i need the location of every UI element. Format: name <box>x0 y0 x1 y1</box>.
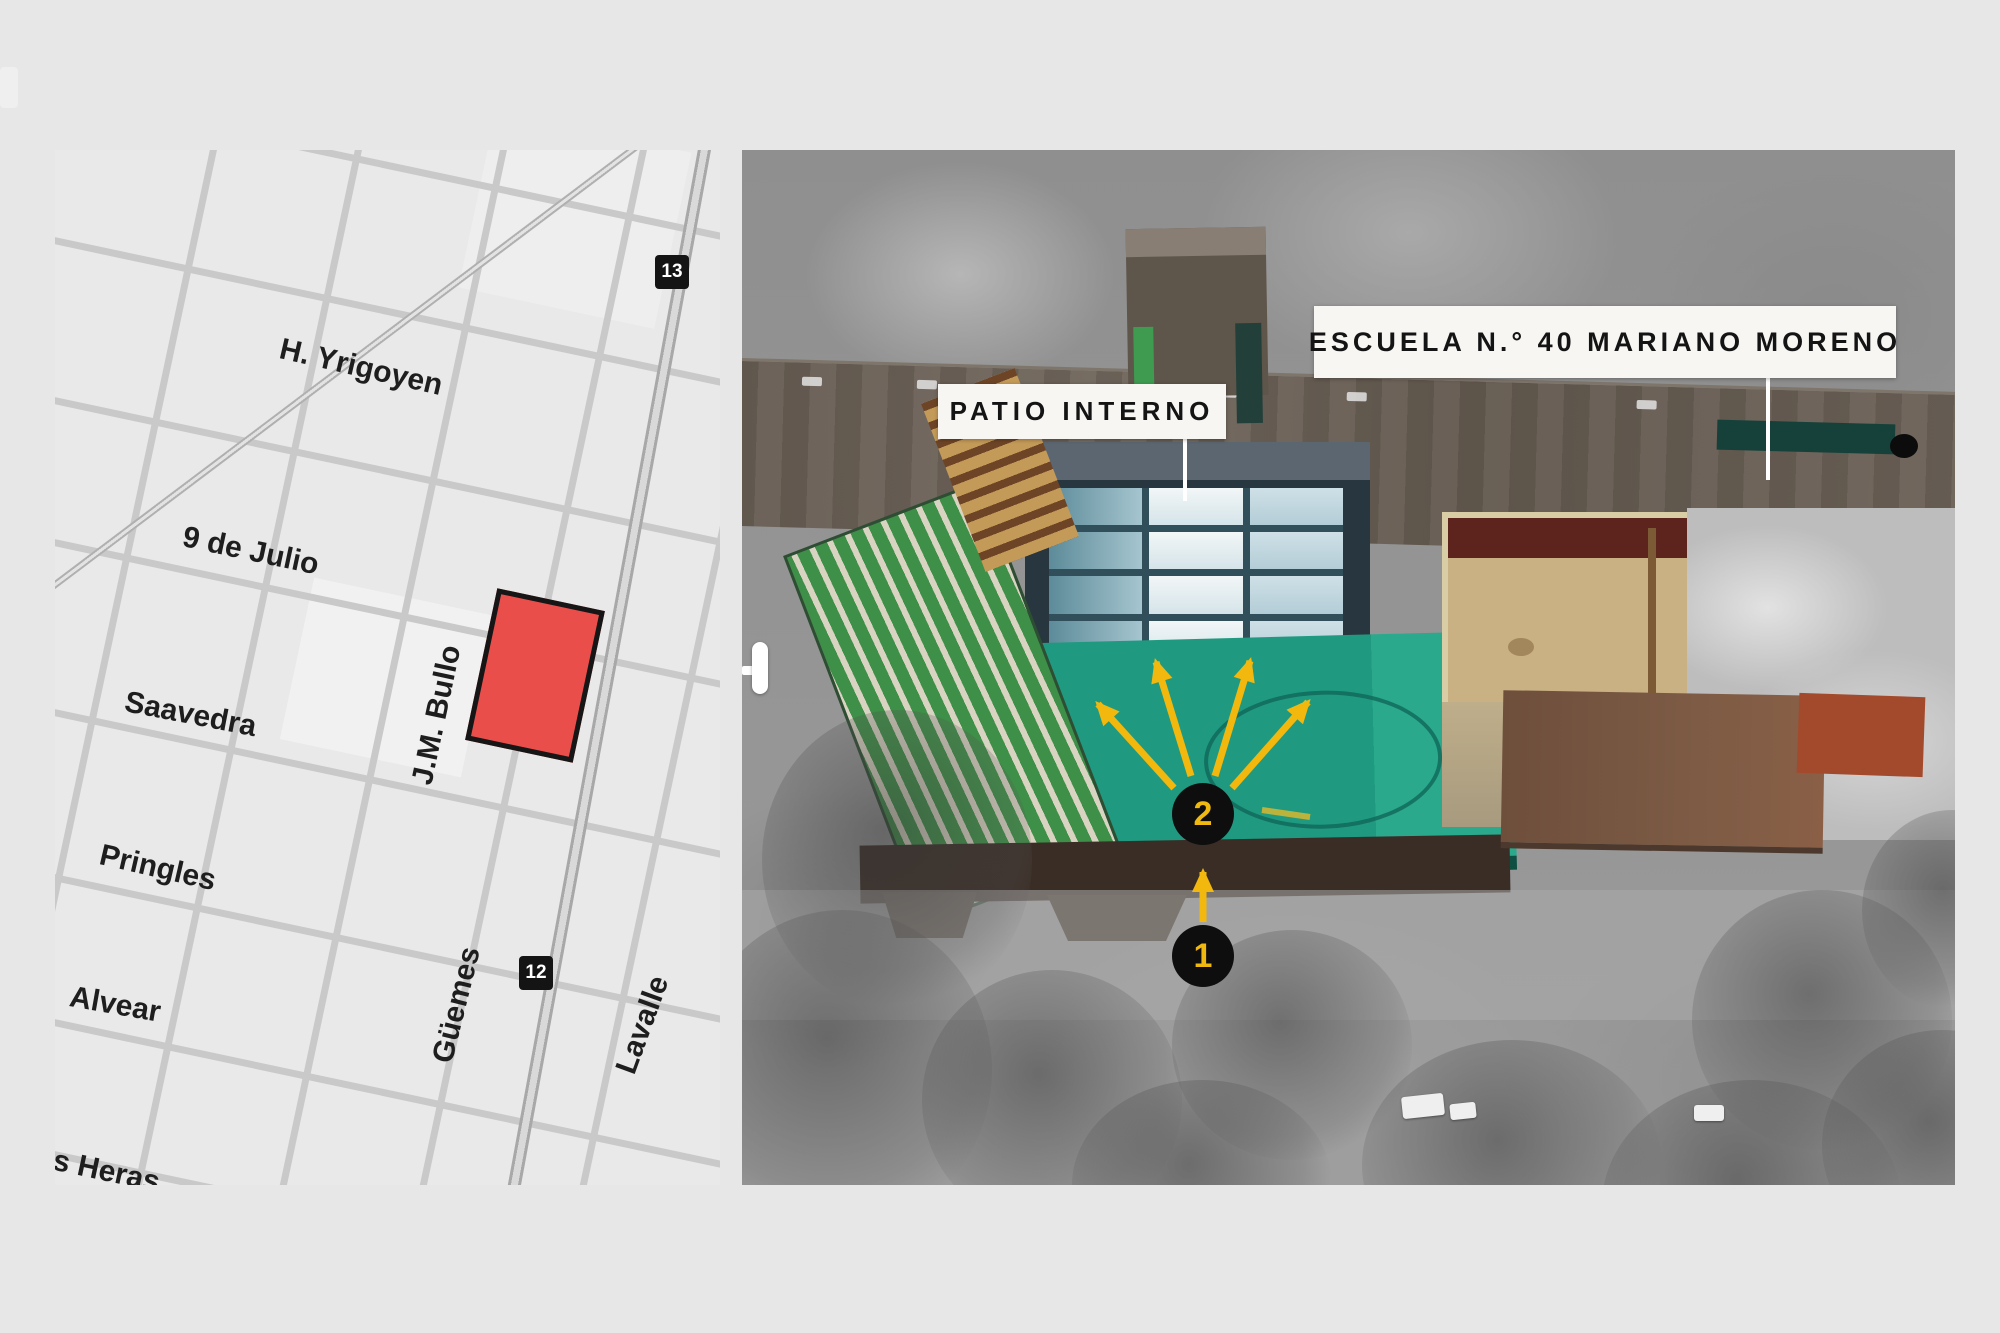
marker-2: 2 <box>1172 783 1234 845</box>
patio-wall <box>1025 442 1370 480</box>
wing-roof-cap <box>1126 227 1266 257</box>
route-badge-number: 13 <box>661 261 682 283</box>
marker-number: 1 <box>1194 937 1213 976</box>
wing-dark-slab <box>1235 323 1263 423</box>
hedge-strip <box>1717 420 1896 455</box>
building-wing <box>1126 227 1269 397</box>
court-marking <box>1202 688 1444 832</box>
white-car <box>1401 1093 1445 1119</box>
corner-chip <box>0 67 18 108</box>
white-car <box>1694 1105 1724 1121</box>
courtyard-pole <box>1648 528 1656 696</box>
white-car <box>1449 1102 1477 1121</box>
courtyard-wall <box>1448 518 1693 558</box>
street-label-yrigoyen: H. Yrigoyen <box>276 332 446 403</box>
hedge-shadow <box>1890 434 1918 458</box>
escuela-leader-line <box>1766 378 1770 480</box>
street-line-yrigoyen <box>55 369 720 573</box>
roof-skylight <box>917 380 937 390</box>
street-map-panel: 13 12 H. Yrigoyen 9 de Julio Saavedra Pr… <box>55 150 720 1185</box>
marker-1: 1 <box>1172 925 1234 987</box>
marker-number: 2 <box>1194 795 1213 834</box>
callout-text: ESCUELA N.° 40 MARIANO MORENO <box>1309 327 1901 358</box>
aerial-photo-panel: PATIO INTERNO ESCUELA N.° 40 MARIANO MOR… <box>742 150 1955 1185</box>
dirt-courtyard <box>1442 512 1699 714</box>
red-roof-section <box>1797 693 1926 777</box>
route-badge-13: 13 <box>655 255 689 289</box>
courtyard-shadow <box>1508 638 1534 656</box>
callout-text: PATIO INTERNO <box>950 396 1215 427</box>
callout-patio-interno: PATIO INTERNO <box>938 384 1226 439</box>
callout-escuela: ESCUELA N.° 40 MARIANO MORENO <box>1314 306 1896 378</box>
patio-leader-line <box>1183 439 1187 501</box>
roof-skylight <box>802 377 822 387</box>
brown-roof <box>1501 690 1826 854</box>
infographic-canvas: 13 12 H. Yrigoyen 9 de Julio Saavedra Pr… <box>0 0 2000 1333</box>
roof-skylight <box>1637 400 1657 410</box>
comparison-slider-handle[interactable] <box>752 642 768 694</box>
route-badge-number: 12 <box>525 962 546 984</box>
street-label-alvear: Alvear <box>67 980 163 1029</box>
roof-skylight <box>1347 392 1367 402</box>
route-badge-12: 12 <box>519 956 553 990</box>
